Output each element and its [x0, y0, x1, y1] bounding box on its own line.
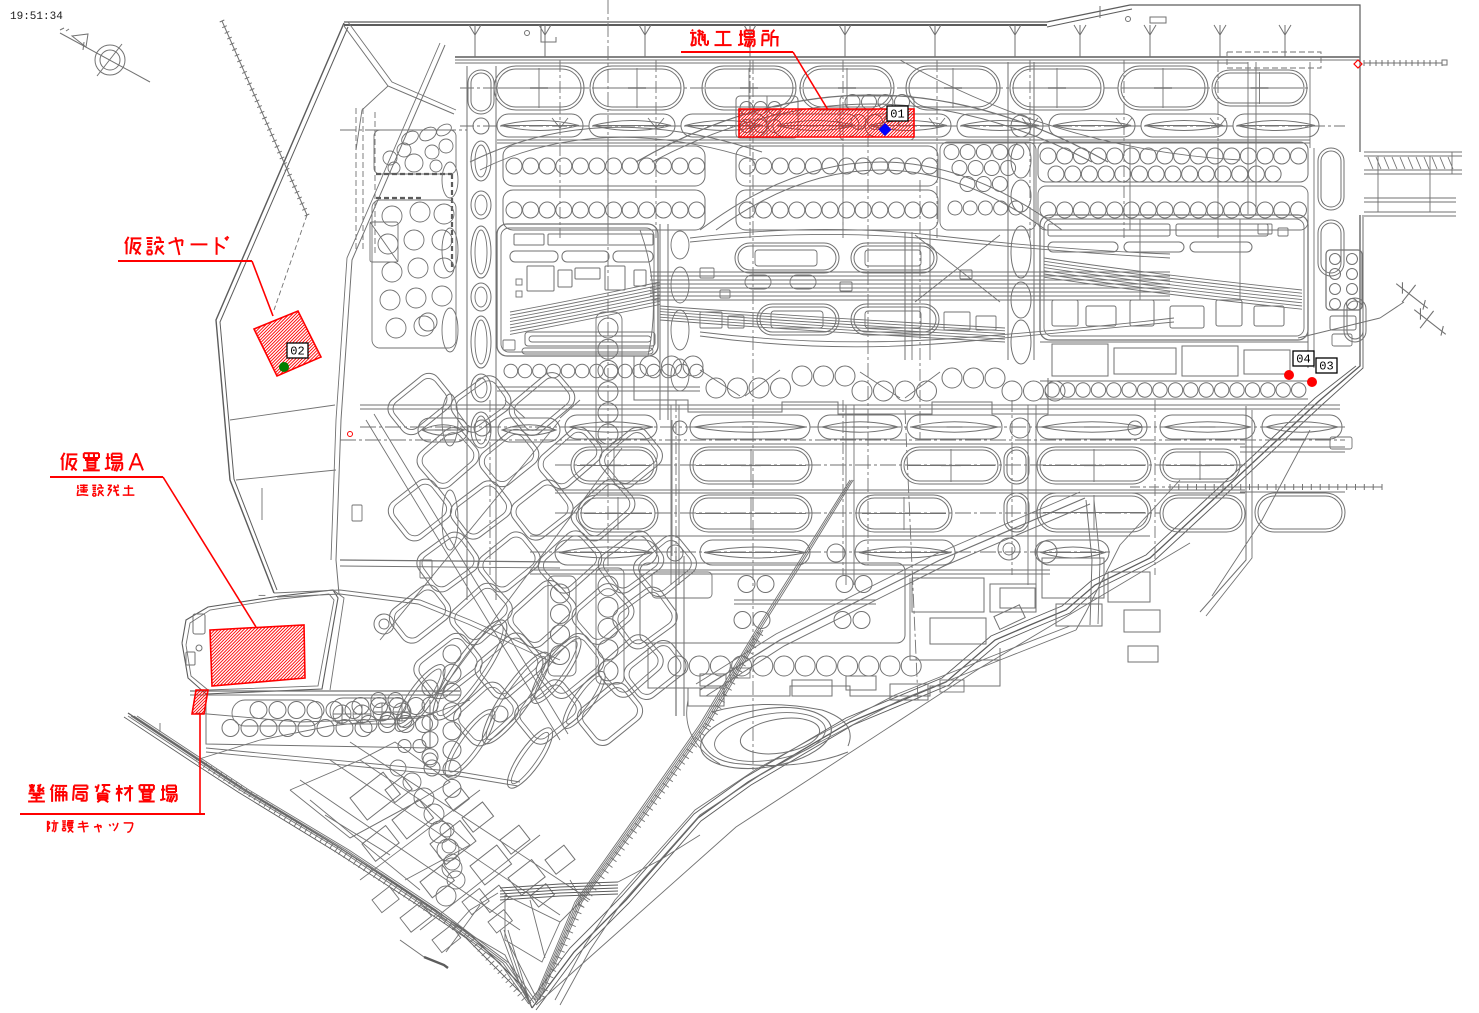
- svg-text:04: 04: [1296, 353, 1310, 367]
- svg-text:01: 01: [890, 108, 904, 122]
- svg-text:02: 02: [290, 345, 304, 359]
- svg-text:19:51:34: 19:51:34: [10, 11, 63, 23]
- svg-text:03: 03: [1319, 360, 1333, 374]
